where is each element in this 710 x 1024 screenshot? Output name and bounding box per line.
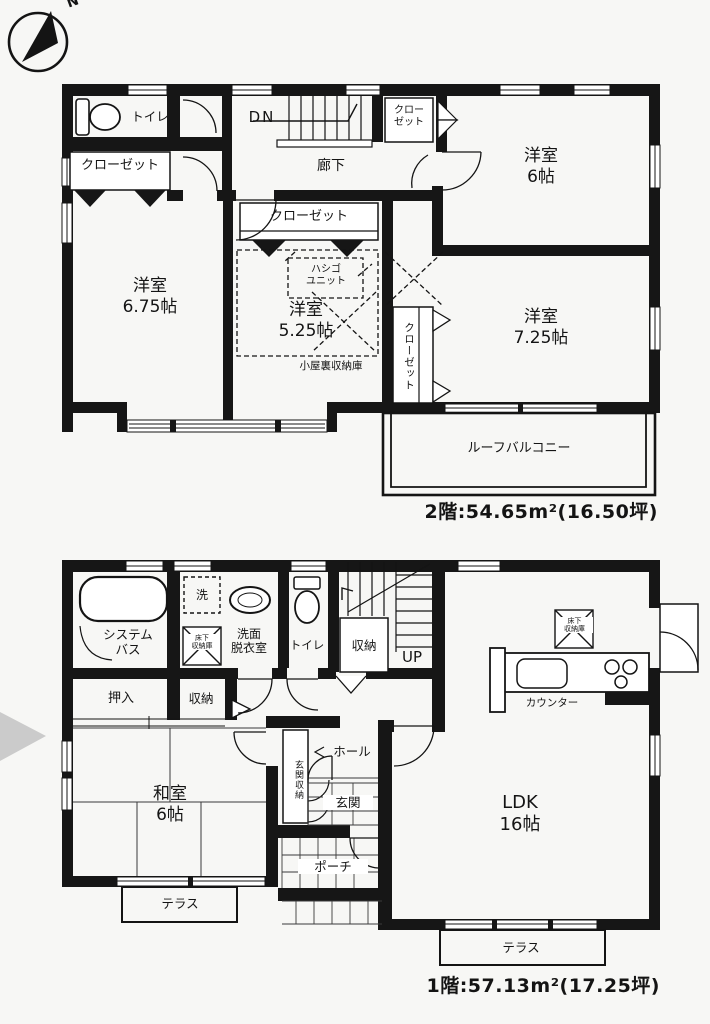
f1-washroom-label: 洗面 脱衣室: [217, 627, 281, 656]
f2-roof-balcony-label: ルーフバルコニー: [439, 441, 599, 457]
f2-closet-center-label: クローゼット: [259, 209, 359, 225]
service-door: [660, 604, 698, 672]
floorplan-page: N トイレ クローゼット DN 廊下 クロー ゼット 洋室 6帖 クローゼット …: [0, 0, 710, 1024]
f2-attic-storage-label: 小屋裏収納庫: [274, 360, 388, 373]
f1-hall-label: ホール: [320, 744, 384, 759]
f1-terrace-ldk-label: テラス: [481, 940, 561, 955]
compass-icon: [9, 11, 67, 71]
f1-entry-label: 玄関: [323, 795, 373, 810]
f1-storage-by-stairs-label: 収納: [339, 638, 389, 653]
f1-system-bath-label: システム バス: [88, 627, 168, 658]
f2-ladder-unit-label: ハシゴ ユニット: [288, 264, 364, 288]
f1-washer-label: 洗: [187, 588, 217, 603]
f1-japanese-room-label: 和室 6帖: [110, 784, 230, 825]
porch-tiles: [282, 838, 382, 924]
floor1-doors: [234, 679, 434, 868]
f2-closet-topleft-label: クローゼット: [70, 158, 170, 174]
f1-entry-storage-label: 玄関収納: [289, 748, 303, 812]
floor2-toilet-icon: [76, 99, 120, 135]
f1-terrace-left-label: テラス: [140, 896, 220, 911]
closet-fronts: [73, 716, 225, 729]
f1-ldk-label: LDK 16帖: [460, 792, 580, 836]
f2-area-label: 2階:54.65m²(16.50坪): [378, 501, 658, 524]
f1-up-label: UP: [392, 648, 432, 666]
f2-closet-vertical-label: クローゼット: [399, 312, 415, 400]
f1-oshiire-label: 押入: [90, 691, 152, 707]
f1-storage-label: 収納: [171, 691, 231, 706]
f2-corridor-label: 廊下: [301, 158, 361, 175]
f1-toilet-label: トイレ: [284, 638, 330, 652]
f2-western725-label: 洋室 7.25帖: [481, 307, 601, 348]
f2-western6-label: 洋室 6帖: [486, 146, 596, 187]
f1-underfloor-left-label: 床下 収納庫: [184, 634, 220, 650]
page-fold-mark: [0, 712, 46, 761]
f2-western675-label: 洋室 6.75帖: [90, 276, 210, 317]
storage-open-mark: [232, 700, 250, 718]
f2-western525-label: 洋室 5.25帖: [246, 300, 366, 341]
f1-underfloor-kitchen-label: 床下 収納庫: [556, 617, 593, 633]
f1-area-label: 1階:57.13m²(17.25坪): [380, 975, 660, 998]
floor1-toilet-icon: [294, 577, 320, 623]
f2-toilet-label: トイレ: [120, 109, 180, 124]
f1-porch-label: ポーチ: [298, 859, 368, 874]
f2-closet-top-label: クロー ゼット: [385, 105, 433, 128]
f2-dn-label: DN: [240, 108, 284, 126]
f1-counter-label: カウンター: [512, 697, 592, 710]
storage-by-stairs-box: [336, 618, 388, 693]
sink-icon: [230, 587, 270, 613]
